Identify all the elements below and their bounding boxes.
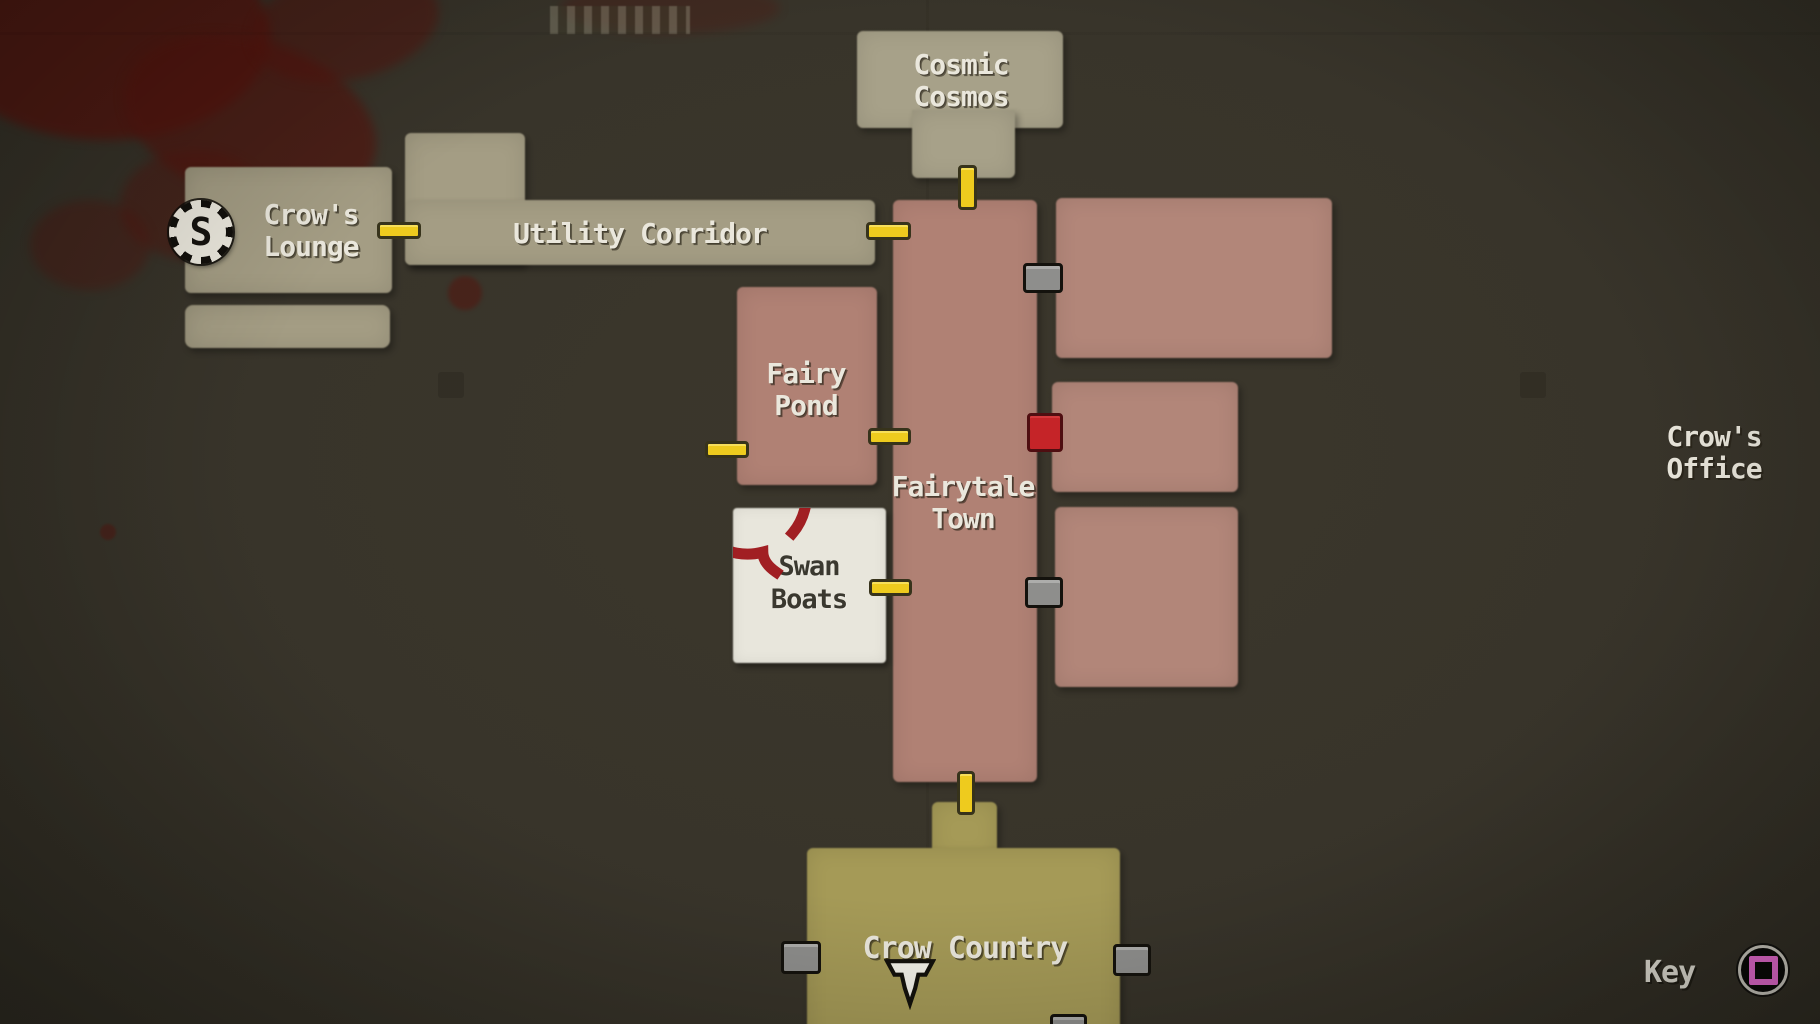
save-point-icon: S <box>169 200 233 264</box>
player-marker-icon <box>884 956 936 1010</box>
square-button-icon <box>1738 945 1788 995</box>
markers-layer: S <box>0 0 1820 1024</box>
map-screen: Cosmic Cosmos Crow's Lounge Utility Corr… <box>0 0 1820 1024</box>
key-prompt-label: Key <box>1644 955 1695 990</box>
key-prompt[interactable]: Key <box>1622 938 1802 1008</box>
red-circle-annotation-icon <box>733 508 886 663</box>
